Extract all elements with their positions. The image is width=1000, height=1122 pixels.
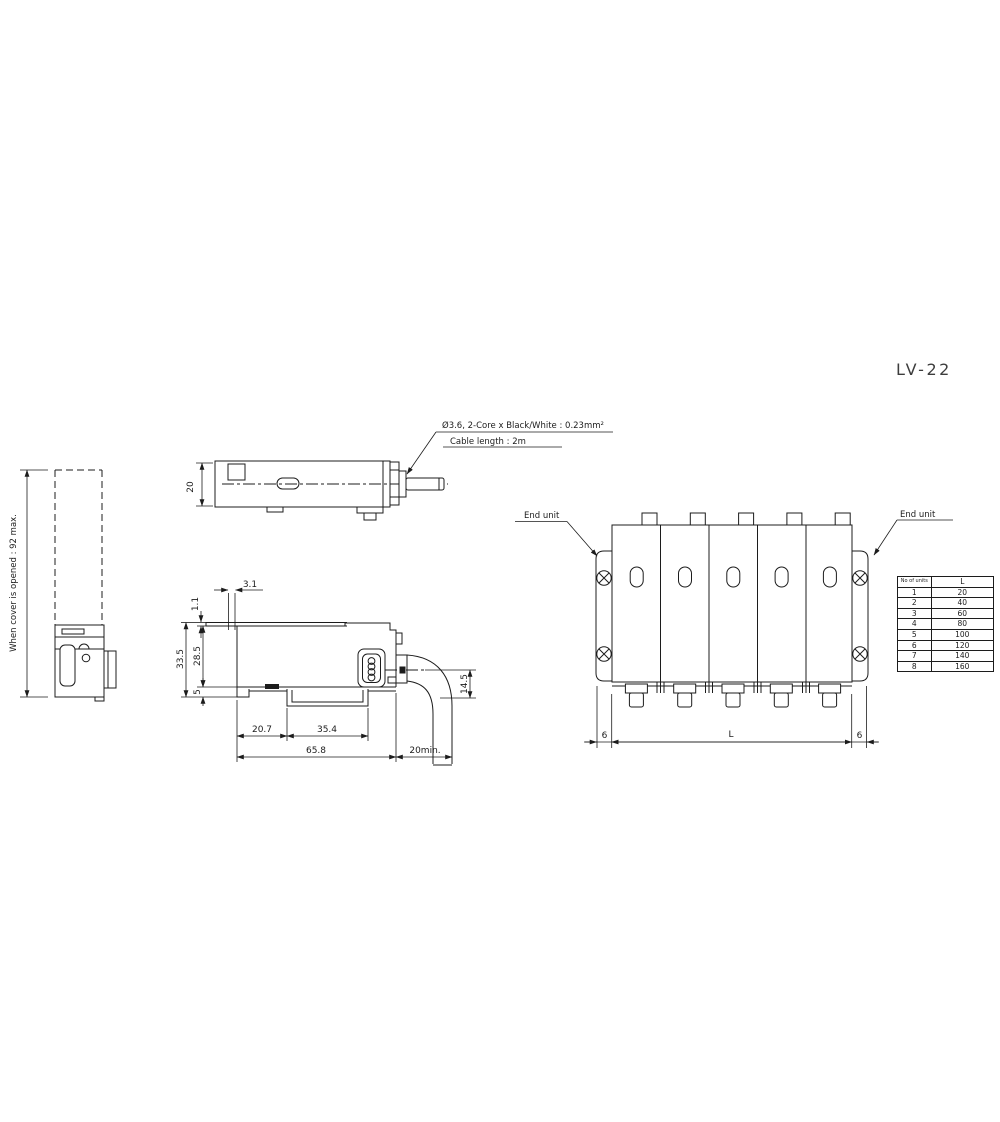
cell-units: 6 [898, 640, 932, 651]
dim-3-1: 3.1 [243, 580, 257, 590]
dim-33-5: 33.5 [176, 649, 186, 669]
cell-length: 80 [931, 619, 993, 630]
dim-20-7: 20.7 [252, 725, 272, 735]
end-unit-label-left: End unit [524, 511, 560, 521]
cell-length: 140 [931, 651, 993, 662]
cell-length: 160 [931, 661, 993, 672]
table-row: 360 [898, 608, 994, 619]
units-length-table: No of units L 120 240 360 480 5100 6120 … [897, 576, 994, 672]
table-header-units: No of units [898, 577, 932, 588]
top-view-height-dim: 20 [186, 481, 196, 493]
cell-units: 5 [898, 629, 932, 640]
cell-units: 7 [898, 651, 932, 662]
cell-length: 60 [931, 608, 993, 619]
table-header-L: L [931, 577, 993, 588]
dim-1-1: 1.1 [191, 597, 201, 611]
cell-length: 40 [931, 598, 993, 609]
fiber-connectors [625, 684, 840, 707]
dim-L: L [728, 730, 733, 740]
dim-6-right: 6 [857, 731, 863, 741]
table-row: 120 [898, 587, 994, 598]
end-unit-leader-right [874, 520, 897, 555]
cell-length: 120 [931, 640, 993, 651]
cell-units: 3 [898, 608, 932, 619]
model-label: LV-22 [896, 360, 952, 379]
cable-spec-text: Ø3.6, 2-Core x Black/White : 0.23mm² [442, 420, 604, 431]
technical-drawing-page: LV-22 Ø3.6, 2-Core x Black/White : 0.23m… [0, 0, 1000, 1122]
dim-5: 5 [193, 689, 203, 695]
cover-opened-note: When cover is opened : 92 max. [9, 514, 19, 652]
cell-length: 20 [931, 587, 993, 598]
dim-35-4: 35.4 [317, 725, 337, 735]
dim-14-5: 14.5 [460, 674, 470, 694]
cable-length-text: Cable length : 2m [450, 437, 526, 447]
table-header-row: No of units L [898, 577, 994, 588]
front-view: End unit End unit [515, 510, 953, 748]
top-view: 20 [186, 461, 448, 520]
table-row: 7140 [898, 651, 994, 662]
cable-annotation: Ø3.6, 2-Core x Black/White : 0.23mm² Cab… [407, 420, 613, 474]
cable-leader-arrow [407, 432, 436, 474]
dim-20min: 20min. [409, 746, 440, 756]
cell-units: 8 [898, 661, 932, 672]
dim-6-left: 6 [602, 731, 608, 741]
left-side-view: When cover is opened : 92 max. [9, 470, 116, 701]
dimensional-drawing-canvas: LV-22 Ø3.6, 2-Core x Black/White : 0.23m… [0, 0, 1000, 1122]
cell-length: 100 [931, 629, 993, 640]
cell-units: 1 [898, 587, 932, 598]
cell-units: 4 [898, 619, 932, 630]
cell-units: 2 [898, 598, 932, 609]
end-unit-leader-left [567, 522, 597, 557]
dim-65-8: 65.8 [306, 746, 326, 756]
end-unit-label-right: End unit [900, 510, 936, 520]
side-view: 3.1 1.1 33.5 28.5 5 [176, 580, 476, 765]
table-row: 240 [898, 598, 994, 609]
table-row: 8160 [898, 661, 994, 672]
dim-28-5: 28.5 [193, 646, 203, 666]
table-row: 6120 [898, 640, 994, 651]
table-row: 5100 [898, 629, 994, 640]
table-row: 480 [898, 619, 994, 630]
